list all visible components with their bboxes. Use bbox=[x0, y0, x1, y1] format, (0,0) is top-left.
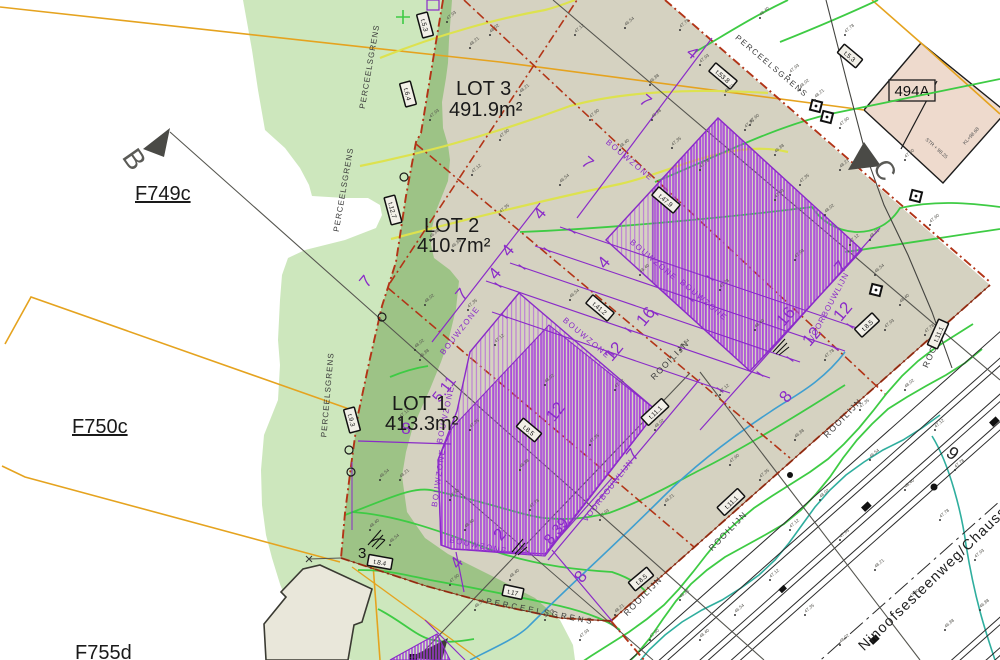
svg-text:3: 3 bbox=[358, 545, 366, 562]
svg-text:F749c: F749c bbox=[135, 183, 191, 205]
svg-text:LOT 3: LOT 3 bbox=[456, 78, 511, 100]
svg-text:F755d: F755d bbox=[75, 642, 132, 660]
svg-text:413.3m²: 413.3m² bbox=[385, 413, 459, 435]
svg-text:491.9m²: 491.9m² bbox=[449, 99, 523, 121]
svg-text:F750c: F750c bbox=[72, 416, 128, 438]
svg-text:LOT 1: LOT 1 bbox=[392, 393, 447, 415]
